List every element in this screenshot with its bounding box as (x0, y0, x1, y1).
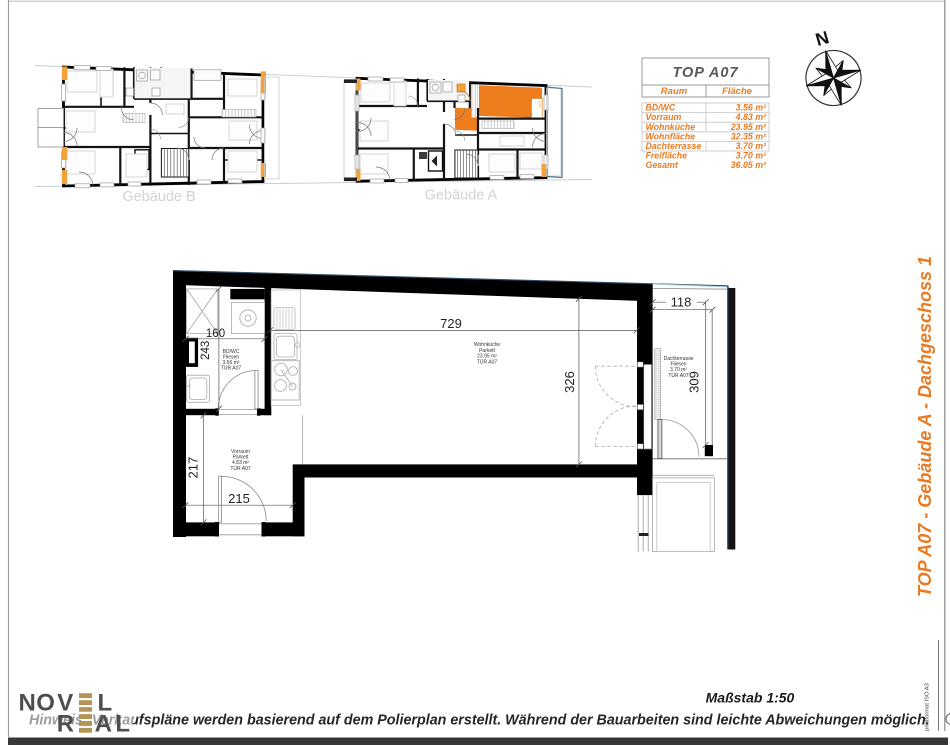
svg-text:309: 309 (687, 371, 702, 393)
svg-text:TOP A07: TOP A07 (672, 65, 738, 81)
svg-text:TÜR A07: TÜR A07 (221, 365, 242, 372)
svg-text:243: 243 (200, 341, 212, 360)
svg-text:A: A (95, 711, 112, 738)
svg-text:215: 215 (228, 491, 250, 506)
svg-text:3.70 m²: 3.70 m² (736, 141, 767, 151)
svg-text:4.83 m²: 4.83 m² (735, 112, 767, 122)
svg-text:Fläche: Fläche (722, 86, 753, 97)
svg-text:R: R (57, 711, 74, 738)
svg-text:729: 729 (440, 316, 462, 331)
svg-text:36.05 m²: 36.05 m² (731, 160, 767, 170)
svg-text:Raum: Raum (661, 86, 688, 97)
svg-text:Maßstab 1:50: Maßstab 1:50 (706, 690, 795, 706)
svg-text:326: 326 (562, 371, 577, 393)
svg-text:160: 160 (206, 328, 225, 340)
svg-text:Wohnküche: Wohnküche (646, 122, 696, 132)
svg-text:Vorraum: Vorraum (646, 112, 682, 122)
svg-text:BD/WC: BD/WC (646, 103, 676, 113)
svg-text:O: O (36, 690, 55, 717)
svg-text:Dachterrasse: Dachterrasse (646, 141, 702, 151)
svg-text:TOP A07 - Gebäude A - Dachgesc: TOP A07 - Gebäude A - Dachgeschoss 1 (915, 256, 935, 597)
svg-text:TÜR A07: TÜR A07 (477, 358, 498, 365)
svg-text:Gebäude A: Gebäude A (425, 188, 498, 204)
svg-text:3.70 m²: 3.70 m² (736, 151, 767, 161)
svg-text:Freifläche: Freifläche (646, 151, 688, 161)
svg-text:118: 118 (671, 295, 692, 310)
svg-text:217: 217 (186, 457, 201, 479)
svg-text:TÜR A07: TÜR A07 (668, 372, 689, 379)
svg-text:32.35 m²: 32.35 m² (731, 131, 767, 141)
svg-text:Gebäude B: Gebäude B (122, 189, 195, 205)
svg-text:L: L (115, 711, 130, 738)
svg-text:Gesamt: Gesamt (646, 160, 679, 170)
svg-text:Wohnfläche: Wohnfläche (646, 131, 696, 141)
svg-text:23.95 m²: 23.95 m² (730, 122, 767, 132)
svg-text:N: N (813, 27, 831, 50)
svg-text:3.56 m²: 3.56 m² (736, 103, 767, 113)
svg-text:N: N (19, 690, 36, 717)
svg-text:printformat ISO A3: printformat ISO A3 (925, 683, 931, 731)
svg-text:TÜR A07: TÜR A07 (230, 465, 251, 472)
svg-text:Hinweis: Verkaufspläne werden: Hinweis: Verkaufspläne werden basierend … (29, 713, 930, 729)
